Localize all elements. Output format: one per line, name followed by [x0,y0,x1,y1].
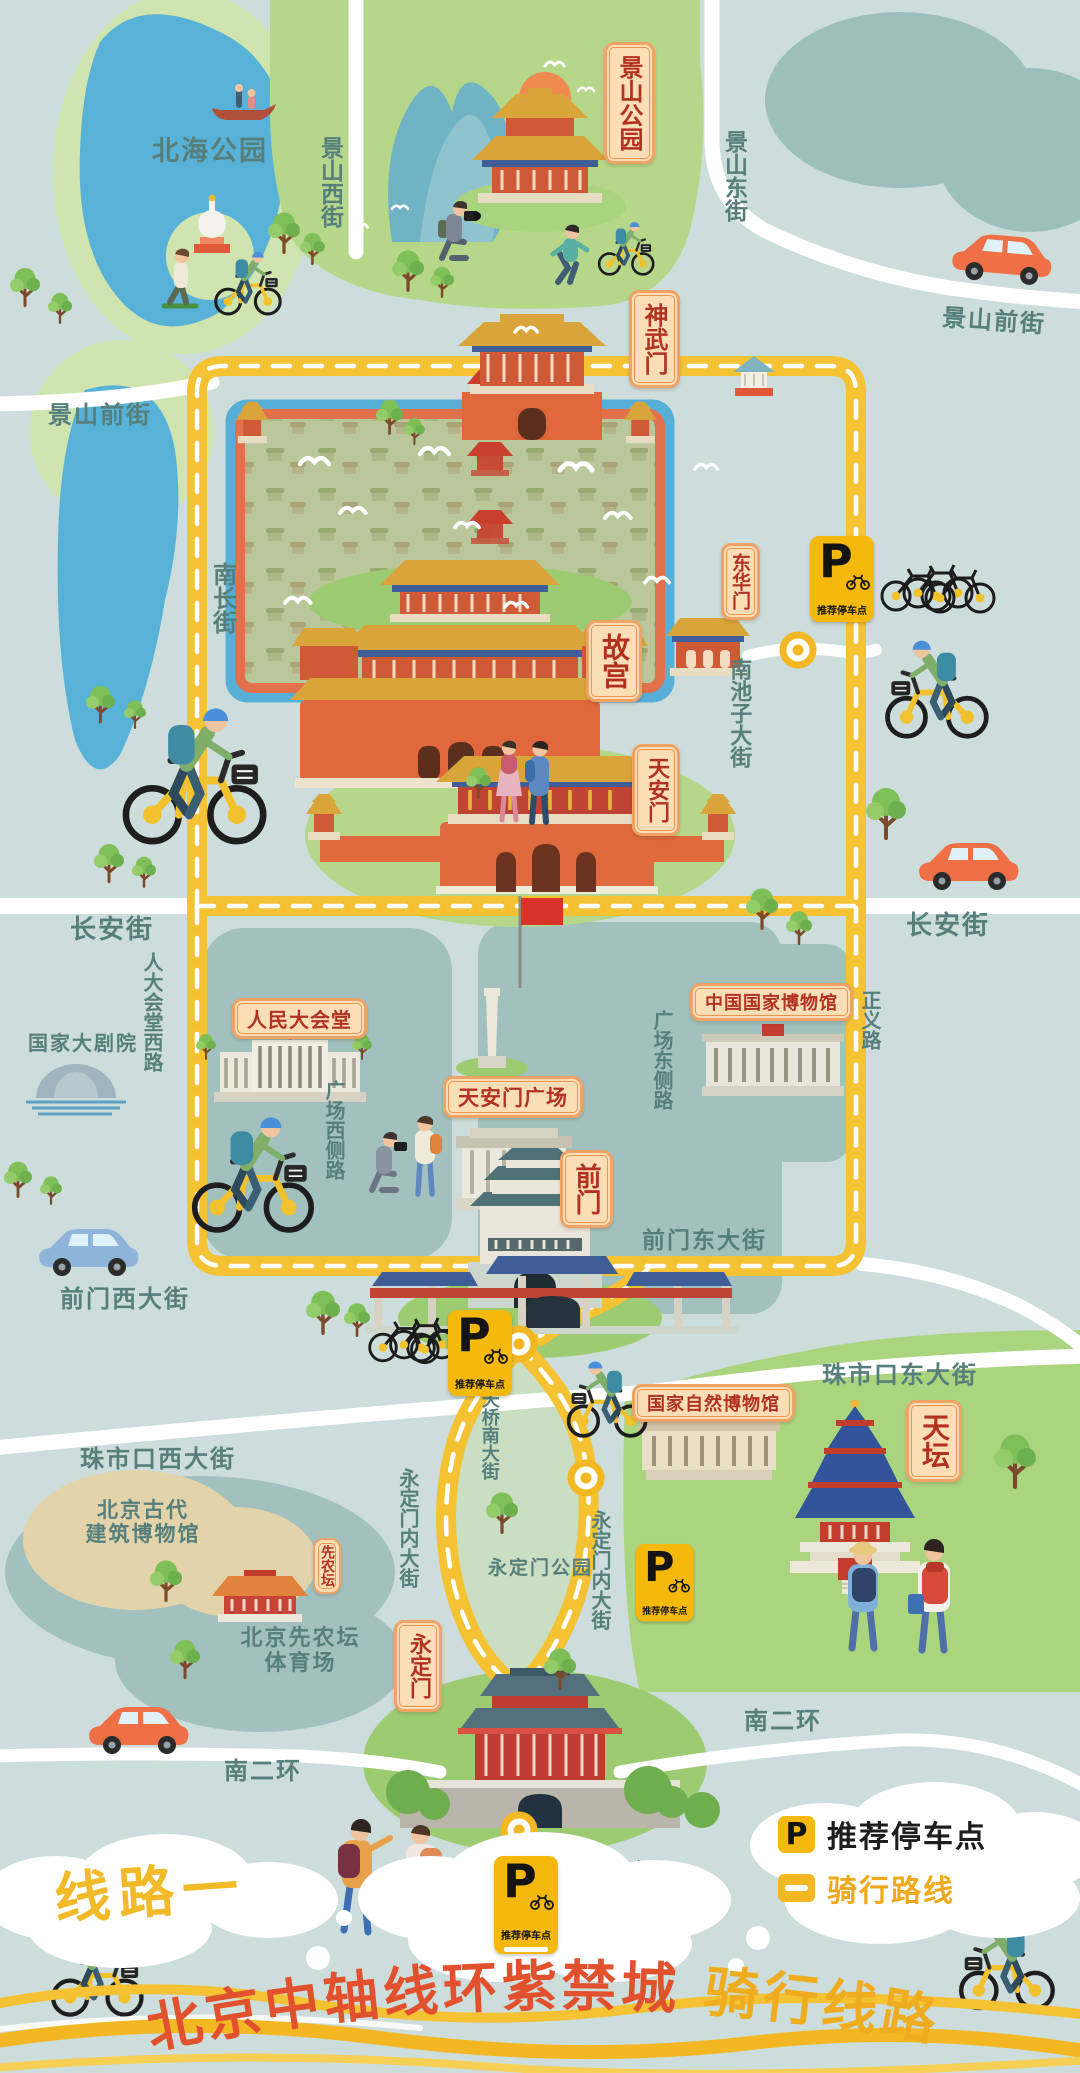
bicycle-icon [846,574,870,590]
street-yongdingmennei-west: 永定门内大街 [396,1468,419,1588]
street-nanchang: 南长街 [208,562,236,634]
badge-national-museum: 中国国家博物馆 [690,983,853,1021]
parking-sign-caption: 推荐停车点 [636,1603,694,1617]
street-qianmen-xi: 前门西大街 [60,1286,190,1314]
badge-shenwumen: 神武门 [629,290,680,388]
legend-parking-label: 推荐停车点 [827,1812,987,1856]
parking-sign: P 推荐停车点 [810,536,874,622]
natural-history-museum-icon [638,1422,780,1480]
place-ancient-museum-line2: 建筑博物馆 [78,1522,208,1546]
legend-route-row: 骑行路线 [778,1866,987,1910]
badge-tiananmen: 天安门 [632,744,680,836]
street-guangchang-dongce: 广场东侧路 [650,1010,673,1110]
street-nanerhuan-west: 南二环 [224,1758,302,1786]
bicycle-icon [668,1578,690,1592]
place-xiannongtan-stadium-line2: 体育场 [228,1651,373,1676]
badge-qianmen: 前门 [560,1150,613,1228]
legend-parking-row: P 推荐停车点 [778,1812,987,1856]
badge-jingshan-park: 景山公园 [604,42,655,164]
street-jingshan-dong: 景山东街 [720,130,746,222]
street-zhushikou-dong: 珠市口东大街 [822,1362,978,1390]
street-changan-east: 长安街 [906,912,990,942]
parking-sign-caption: 推荐停车点 [810,602,874,617]
street-qianmen-dong: 前门东大街 [642,1228,767,1254]
place-ncpa: 国家大剧院 [28,1032,138,1055]
badge-tiananmen-square: 天安门广场 [443,1076,583,1118]
legend: P 推荐停车点 骑行路线 [778,1812,987,1910]
badge-xiannongtan: 先农坛 [313,1538,341,1594]
place-xiannongtan-stadium: 北京先农坛 体育场 [228,1626,373,1677]
legend-parking-icon: P [778,1816,815,1853]
map-poster: 北京中轴线环紫禁城 骑行线路 景山西街 景山东街 景山前街 景山前街 南长街 南… [0,0,1080,2073]
street-nanerhuan-east: 南二环 [744,1708,822,1736]
street-jingshan-qian-west: 景山前街 [48,402,152,430]
street-zhengyi: 正义路 [858,990,881,1050]
badge-tiantan: 天坛 [906,1400,962,1482]
parking-sign: P 推荐停车点 [494,1856,558,1954]
street-jingshan-xi: 景山西街 [316,136,342,228]
place-yongdingmen-park: 永定门公园 [488,1558,593,1580]
parking-sign-caption: 推荐停车点 [494,1927,558,1942]
ncpa-dome-icon [26,1064,126,1114]
place-xiannongtan-stadium-line1: 北京先农坛 [228,1626,373,1651]
street-nanchizi: 南池子大街 [726,658,751,768]
street-changan-west: 长安街 [70,916,154,946]
route-number-tag: 线路一 [51,1841,248,1935]
badge-gugong: 故宫 [586,620,642,702]
national-museum-icon [702,1024,844,1096]
parking-sign: P 推荐停车点 [448,1310,512,1396]
legend-route-icon [778,1874,815,1902]
place-beihai-park: 北海公园 [152,136,268,167]
legend-route-label: 骑行路线 [827,1866,955,1910]
place-ancient-museum-line1: 北京古代 [78,1498,208,1522]
parking-sign-caption: 推荐停车点 [448,1376,512,1391]
badge-natural-history-museum: 国家自然博物馆 [632,1384,795,1422]
parking-sign: P 推荐停车点 [636,1544,694,1621]
shenwumen-gate-icon [458,314,606,440]
street-tianqiao-nan: 天桥南大街 [478,1390,499,1480]
bicycle-icon [484,1348,508,1364]
badge-yongdingmen: 永定门 [394,1620,442,1712]
place-ancient-museum: 北京古代 建筑博物馆 [78,1498,208,1546]
badge-great-hall: 人民大会堂 [232,998,367,1039]
street-zhushikou-xi: 珠市口西大街 [80,1446,236,1474]
badge-donghuamen: 东华门 [721,543,760,620]
street-rendahuitang-xi: 人大会堂西路 [140,952,163,1072]
street-guangchang-xice: 广场西侧路 [322,1080,345,1180]
bicycle-icon [530,1894,554,1910]
